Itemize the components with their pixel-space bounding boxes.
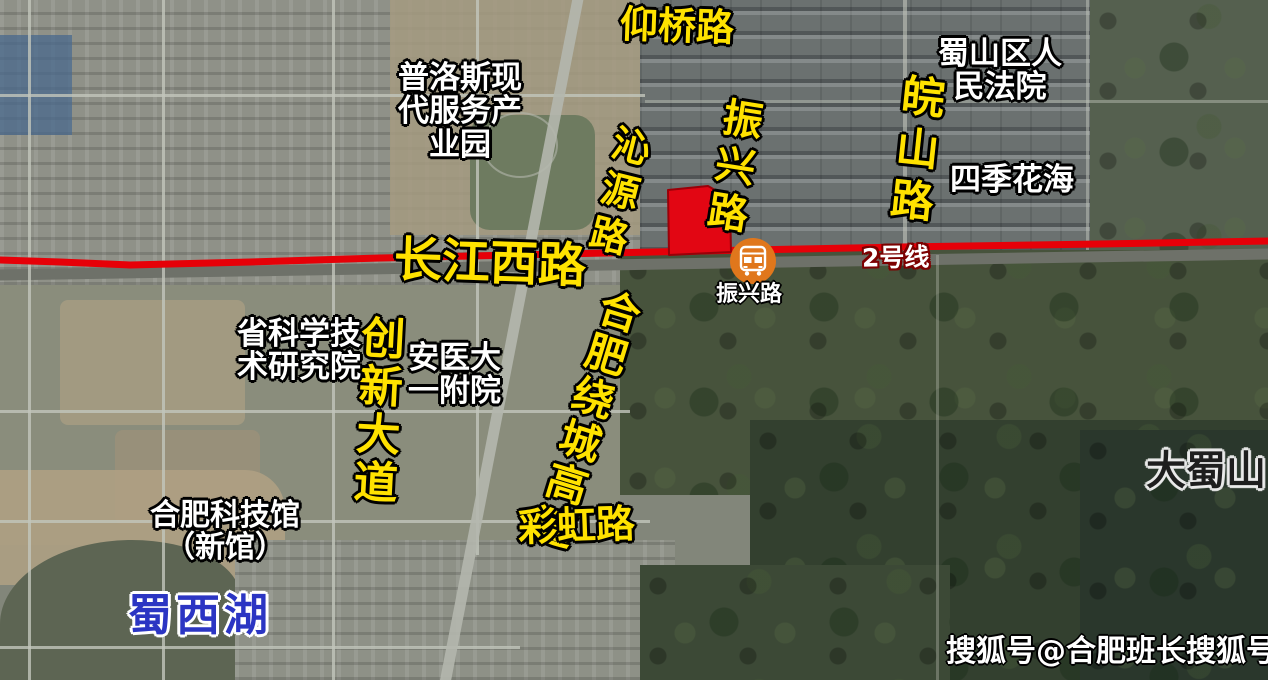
place-label-court: 蜀山区人 民法院 [938,38,1062,105]
place-label-science-museum: 合肥科技馆 （新馆） [150,500,300,565]
road-line-v1 [28,0,31,680]
place-label-court-line1: 蜀山区人 [938,38,1062,71]
road-line-h3 [0,410,630,413]
satellite-patch-green-bottomcenter [640,565,950,680]
place-label-hospital-line1: 安医大 [408,342,501,375]
road-label-caihonglu: 彩虹路 [517,504,635,550]
satellite-patch-tan-1 [60,300,245,425]
place-label-prologis-line2: 代服务产 [398,95,522,128]
road-label-changjiangxilu: 长江西路 [393,235,587,293]
place-label-lake: 蜀西湖 [128,592,272,640]
place-label-prologis-line1: 普洛斯现 [398,62,522,95]
place-label-court-line2: 民法院 [938,71,1062,104]
road-line-v7 [936,255,939,680]
satellite-patch-green-farright [1090,0,1268,265]
place-label-prologis-line3: 业园 [398,129,522,162]
place-label-science-museum-line1: 合肥科技馆 [150,500,300,532]
place-label-science-museum-line2: （新馆） [150,532,300,564]
satellite-patch-blue-roofs [0,35,72,135]
road-label-yangqiaolu: 仰桥路 [619,4,734,49]
road-line-v6 [1086,0,1089,250]
place-label-sci-institute: 省科学技 术研究院 [237,318,361,385]
metro-line-badge: 2号线 [862,243,930,271]
place-label-sci-institute-line2: 术研究院 [237,351,361,384]
place-label-hospital-line2: 一附院 [408,375,501,408]
metro-station-label: 振兴路 [716,283,782,307]
place-label-hospital: 安医大 一附院 [408,342,501,409]
place-label-sci-institute-line1: 省科学技 [237,318,361,351]
road-line-v2 [162,0,165,680]
place-label-prologis: 普洛斯现 代服务产 业园 [398,62,522,162]
place-label-mountain: 大蜀山 [1146,450,1266,493]
place-label-flower-sea: 四季花海 [950,164,1074,197]
satellite-map: 仰桥路 皖山路 沁源路 振兴路 长江西路 创新大道 合肥绕城高速 彩虹路 蜀山区… [0,0,1268,680]
road-line-h1 [0,94,645,97]
watermark: 搜狐号@合肥班长搜狐号 [946,636,1268,668]
road-line-h5 [0,646,520,649]
